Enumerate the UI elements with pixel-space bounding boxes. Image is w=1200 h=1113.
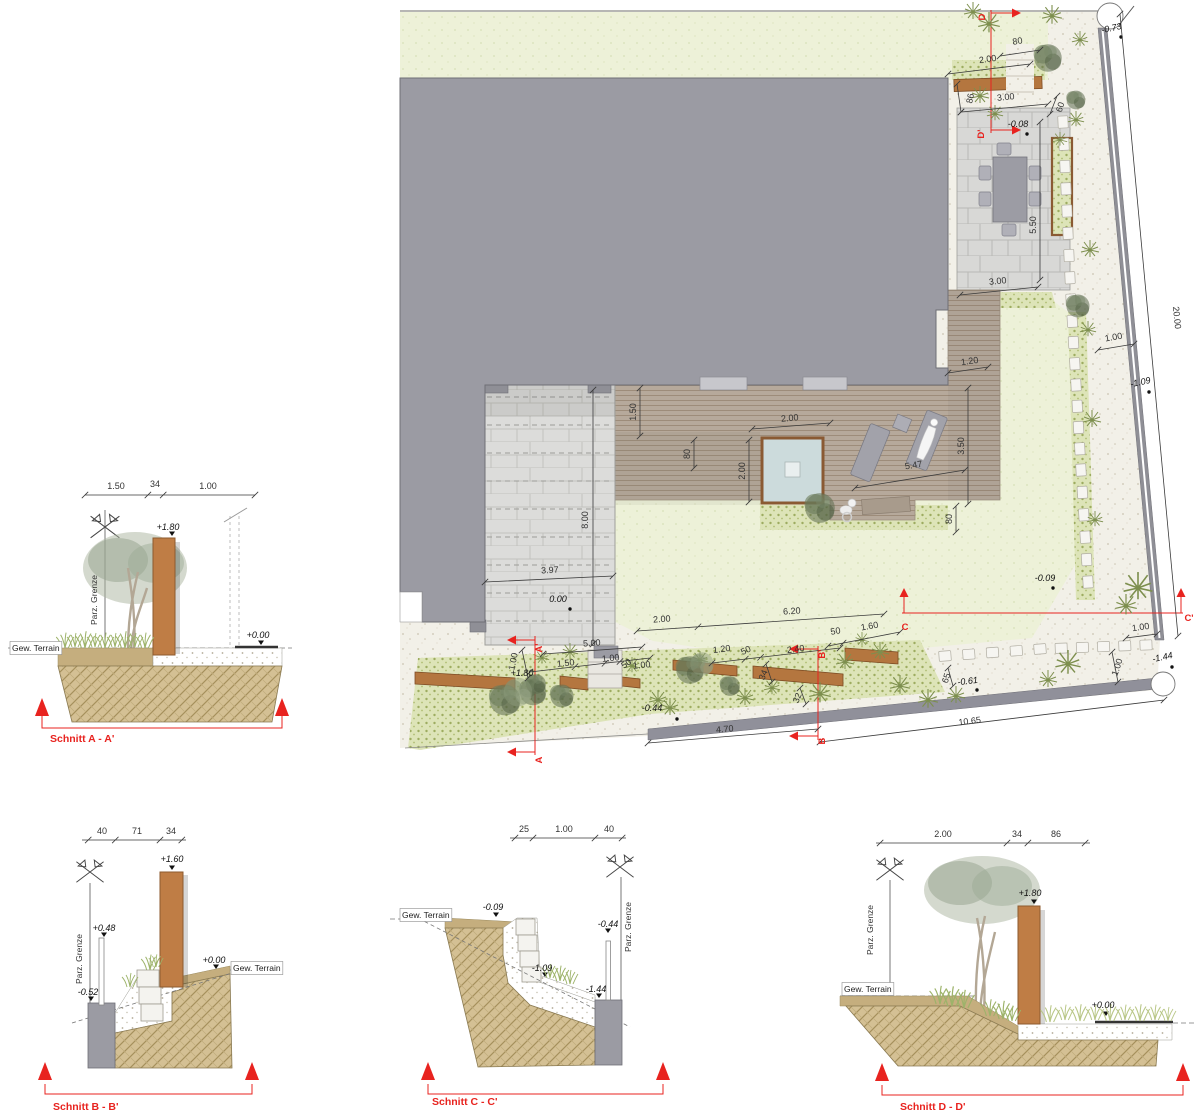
dimension-label: 1.50: [107, 481, 125, 491]
stepping-stone: [1061, 183, 1072, 195]
section-title-label: Schnitt C - C': [432, 1096, 498, 1108]
dimension-label: 10.65: [958, 715, 982, 728]
elevation-label: +1.80: [157, 522, 180, 532]
elevation-marker: [493, 913, 499, 918]
dimension-label: 1.00: [555, 824, 573, 834]
elevation-label: -0.09: [1035, 573, 1056, 583]
elevation-label: +1.80: [511, 668, 534, 678]
stepping-stone: [1076, 642, 1088, 652]
dimension-label: 2.40: [786, 643, 805, 655]
stepping-stone: [1058, 116, 1069, 128]
elevation-marker: [101, 933, 107, 938]
dimension-label: 20.00: [1171, 306, 1183, 329]
site-plan: 802.00863.00605.503.001.203.50801.502.00…: [400, 2, 1194, 763]
dimension-label: 1.20: [712, 643, 731, 655]
boundary-label: Parz. Grenze: [623, 902, 633, 952]
dimension-label: 50: [830, 625, 842, 637]
stepping-stone: [1072, 400, 1083, 413]
stepping-stone: [1074, 443, 1085, 456]
dimension-label: 5.00: [583, 637, 601, 648]
section-marker-label: A': [534, 643, 545, 652]
dimension-label: 1.50: [556, 657, 574, 669]
stepping-stone: [1055, 643, 1067, 653]
stepping-stone: [1068, 336, 1079, 349]
boundary-label: Parz. Grenze: [89, 575, 99, 625]
tuft-symbol: [1116, 1005, 1134, 1020]
dimension-label: 1.50: [628, 403, 638, 421]
section-marker-label: C: [902, 622, 909, 633]
stepping-stone: [1064, 249, 1075, 261]
ptree-symbol: [690, 652, 713, 675]
paved-terrace: [485, 383, 615, 645]
elevation-marker: [88, 997, 94, 1002]
tuft-symbol: [1130, 1004, 1149, 1021]
dimension-label: 3.97: [541, 565, 559, 576]
dimension-label: 80: [944, 514, 954, 524]
stepping-stone: [962, 649, 975, 660]
section-title-label: Schnitt D - D': [900, 1101, 966, 1113]
building-notch: [400, 592, 422, 622]
ptree-symbol: [504, 678, 533, 707]
tuft-symbol: [1070, 1004, 1089, 1021]
dimension-label: 1.00: [199, 481, 217, 491]
elevation-marker: [169, 532, 175, 537]
stepping-stone: [1034, 644, 1047, 655]
boundary-label: Parz. Grenze: [865, 905, 875, 955]
dimension-label: 3.50: [956, 437, 966, 455]
stepping-stone: [986, 647, 999, 658]
dimension-line: [82, 837, 186, 843]
dimension-line: [82, 492, 258, 498]
stone-blocks: [137, 970, 163, 1021]
section-marker-label: C': [1184, 613, 1193, 624]
elevation-label: +0.00: [247, 630, 270, 640]
terrain-label: Gew. Terrain: [844, 984, 892, 994]
section-c: 251.0040-0.09-0.44-1.09-1.44Gew. Terrain…: [390, 824, 670, 1108]
tuft-symbol: [562, 970, 578, 984]
retaining-wall: [595, 1000, 622, 1065]
elevation-marker: [596, 994, 602, 999]
fence-post: [606, 941, 611, 1000]
landscape-plan-drawing: 802.00863.00605.503.001.203.50801.502.00…: [0, 0, 1200, 1113]
tuft-symbol: [1160, 1007, 1176, 1021]
section-a: 1.50341.00+1.80+0.00Gew. TerrainParz. Gr…: [8, 479, 292, 745]
stepping-stone: [1071, 379, 1082, 392]
survey-mark-icon: [876, 858, 903, 880]
stepping-stone: [1062, 205, 1073, 217]
survey-mark-icon: [606, 855, 633, 877]
garden-plan-sheet: 802.00863.00605.503.001.203.50801.502.00…: [0, 0, 1200, 1113]
elevation-label: -0.08: [1008, 119, 1029, 129]
dimension-label: 34: [1012, 829, 1022, 839]
dining-table: [993, 157, 1027, 222]
stepping-stone: [1119, 641, 1131, 651]
stepping-stone: [1073, 421, 1084, 434]
section-d: 2.003486+1.80+0.00Gew. TerrainParz. Gren…: [840, 829, 1197, 1113]
section-marker-label: B': [817, 649, 828, 658]
dimension-label: 86: [964, 92, 976, 104]
stepping-stone: [1010, 645, 1023, 656]
stepping-stone: [1083, 576, 1094, 589]
stepping-stone: [1069, 358, 1080, 371]
elevation-label: +0.00: [203, 955, 226, 965]
elevation-label: -0.09: [483, 902, 504, 912]
dimension-label: 3.00: [988, 275, 1006, 287]
stepping-stone: [1081, 553, 1092, 566]
section-marker-label: D: [977, 13, 988, 20]
dimension-label: 80: [682, 449, 692, 459]
section-bracket: [428, 1084, 663, 1094]
stepping-stone: [1080, 531, 1091, 544]
elevation-label: +0.48: [93, 923, 116, 933]
dimension-label: 5.50: [1028, 216, 1038, 234]
section-b: 407134+1.60+0.48-0.52+0.00Gew. TerrainPa…: [38, 826, 283, 1113]
section-bracket: [45, 1084, 252, 1094]
elevation-label: -0.52: [78, 987, 99, 997]
elevation-marker: [605, 929, 611, 934]
terrain-label: Gew. Terrain: [12, 643, 60, 653]
dimension-label: 2.00: [653, 613, 671, 624]
section-bracket: [882, 1085, 1183, 1095]
elevation-marker: [169, 866, 175, 871]
elevation-label: -0.44: [642, 703, 663, 713]
stepping-stone: [1140, 640, 1152, 650]
terrain-label: Gew. Terrain: [402, 910, 450, 920]
elevation-label: +1.80: [1019, 888, 1042, 898]
dimension-label: 80: [1012, 35, 1024, 47]
elevation-label: +1.60: [161, 854, 184, 864]
dimension-label: 4.70: [716, 723, 734, 734]
dimension-line: [876, 840, 1090, 846]
tuft-symbol: [1056, 1005, 1074, 1020]
stepping-stone: [1065, 272, 1076, 284]
terrain-label: Gew. Terrain: [233, 963, 281, 973]
dimension-line: [510, 835, 626, 841]
water-basin: [762, 438, 823, 503]
bench: [862, 496, 911, 514]
soil-body: [58, 666, 282, 722]
wall-shadow: [183, 875, 188, 987]
stepping-stone: [1060, 160, 1071, 172]
stepping-stone: [1097, 641, 1109, 651]
section-title-label: Schnitt A - A': [50, 733, 114, 745]
wall-shadow: [175, 542, 180, 654]
elevation-label: +0.00: [1092, 1000, 1115, 1010]
dimension-label: 8.00: [580, 511, 590, 529]
dimension-label: 2.00: [737, 462, 747, 480]
dashed-reference: [230, 516, 239, 648]
wall-shadow: [1040, 910, 1045, 1024]
dimension-label: 71: [132, 826, 142, 836]
break-mark: [224, 508, 247, 522]
elevation-label: -0.44: [598, 919, 619, 929]
stepping-stone: [1077, 486, 1088, 499]
dimension-label: 1.00: [601, 652, 619, 664]
boundary-label: Parz. Grenze: [74, 934, 84, 984]
dimension-label: 25: [519, 824, 529, 834]
elevation-label: -1.44: [586, 984, 607, 994]
topsoil: [58, 648, 153, 666]
deck-shadow: [948, 290, 1000, 500]
dimension-label: 2.00: [934, 829, 952, 839]
elevation-label: 0.00: [549, 594, 567, 604]
fence-post: [99, 938, 104, 1005]
dimension-label: 3.00: [996, 91, 1014, 103]
dimension-label: 86: [1051, 829, 1061, 839]
gravel-base: [1018, 1024, 1172, 1040]
survey-mark-icon: [76, 860, 103, 882]
boundary-point: [1151, 672, 1175, 696]
elevation-marker: [258, 641, 264, 646]
dimension-label: 34: [166, 826, 176, 836]
stepping-stone: [1076, 464, 1087, 477]
corten-wall: [160, 872, 183, 987]
dimension-label: 40: [604, 824, 614, 834]
dimension-label: 40: [97, 826, 107, 836]
section-marker-label: B: [817, 737, 828, 744]
corten-wall: [153, 538, 175, 655]
dimension-label: 1.00: [632, 659, 650, 671]
dimension-label: 34: [150, 479, 160, 489]
stepping-stone: [939, 651, 952, 662]
elevation-label: -1.09: [532, 963, 553, 973]
dimension-label: 6.20: [783, 605, 801, 616]
retaining-wall: [88, 1003, 115, 1068]
section-marker-label: D': [976, 129, 987, 138]
section-title-label: Schnitt B - B': [53, 1101, 119, 1113]
corten-wall: [1018, 906, 1040, 1024]
dimension-label: 2.00: [781, 412, 799, 423]
neighbor-lawn-strip: [400, 12, 1048, 80]
stepping-stone: [1078, 508, 1089, 521]
stepping-stone: [1063, 227, 1074, 239]
section-marker-label: A: [534, 756, 545, 763]
